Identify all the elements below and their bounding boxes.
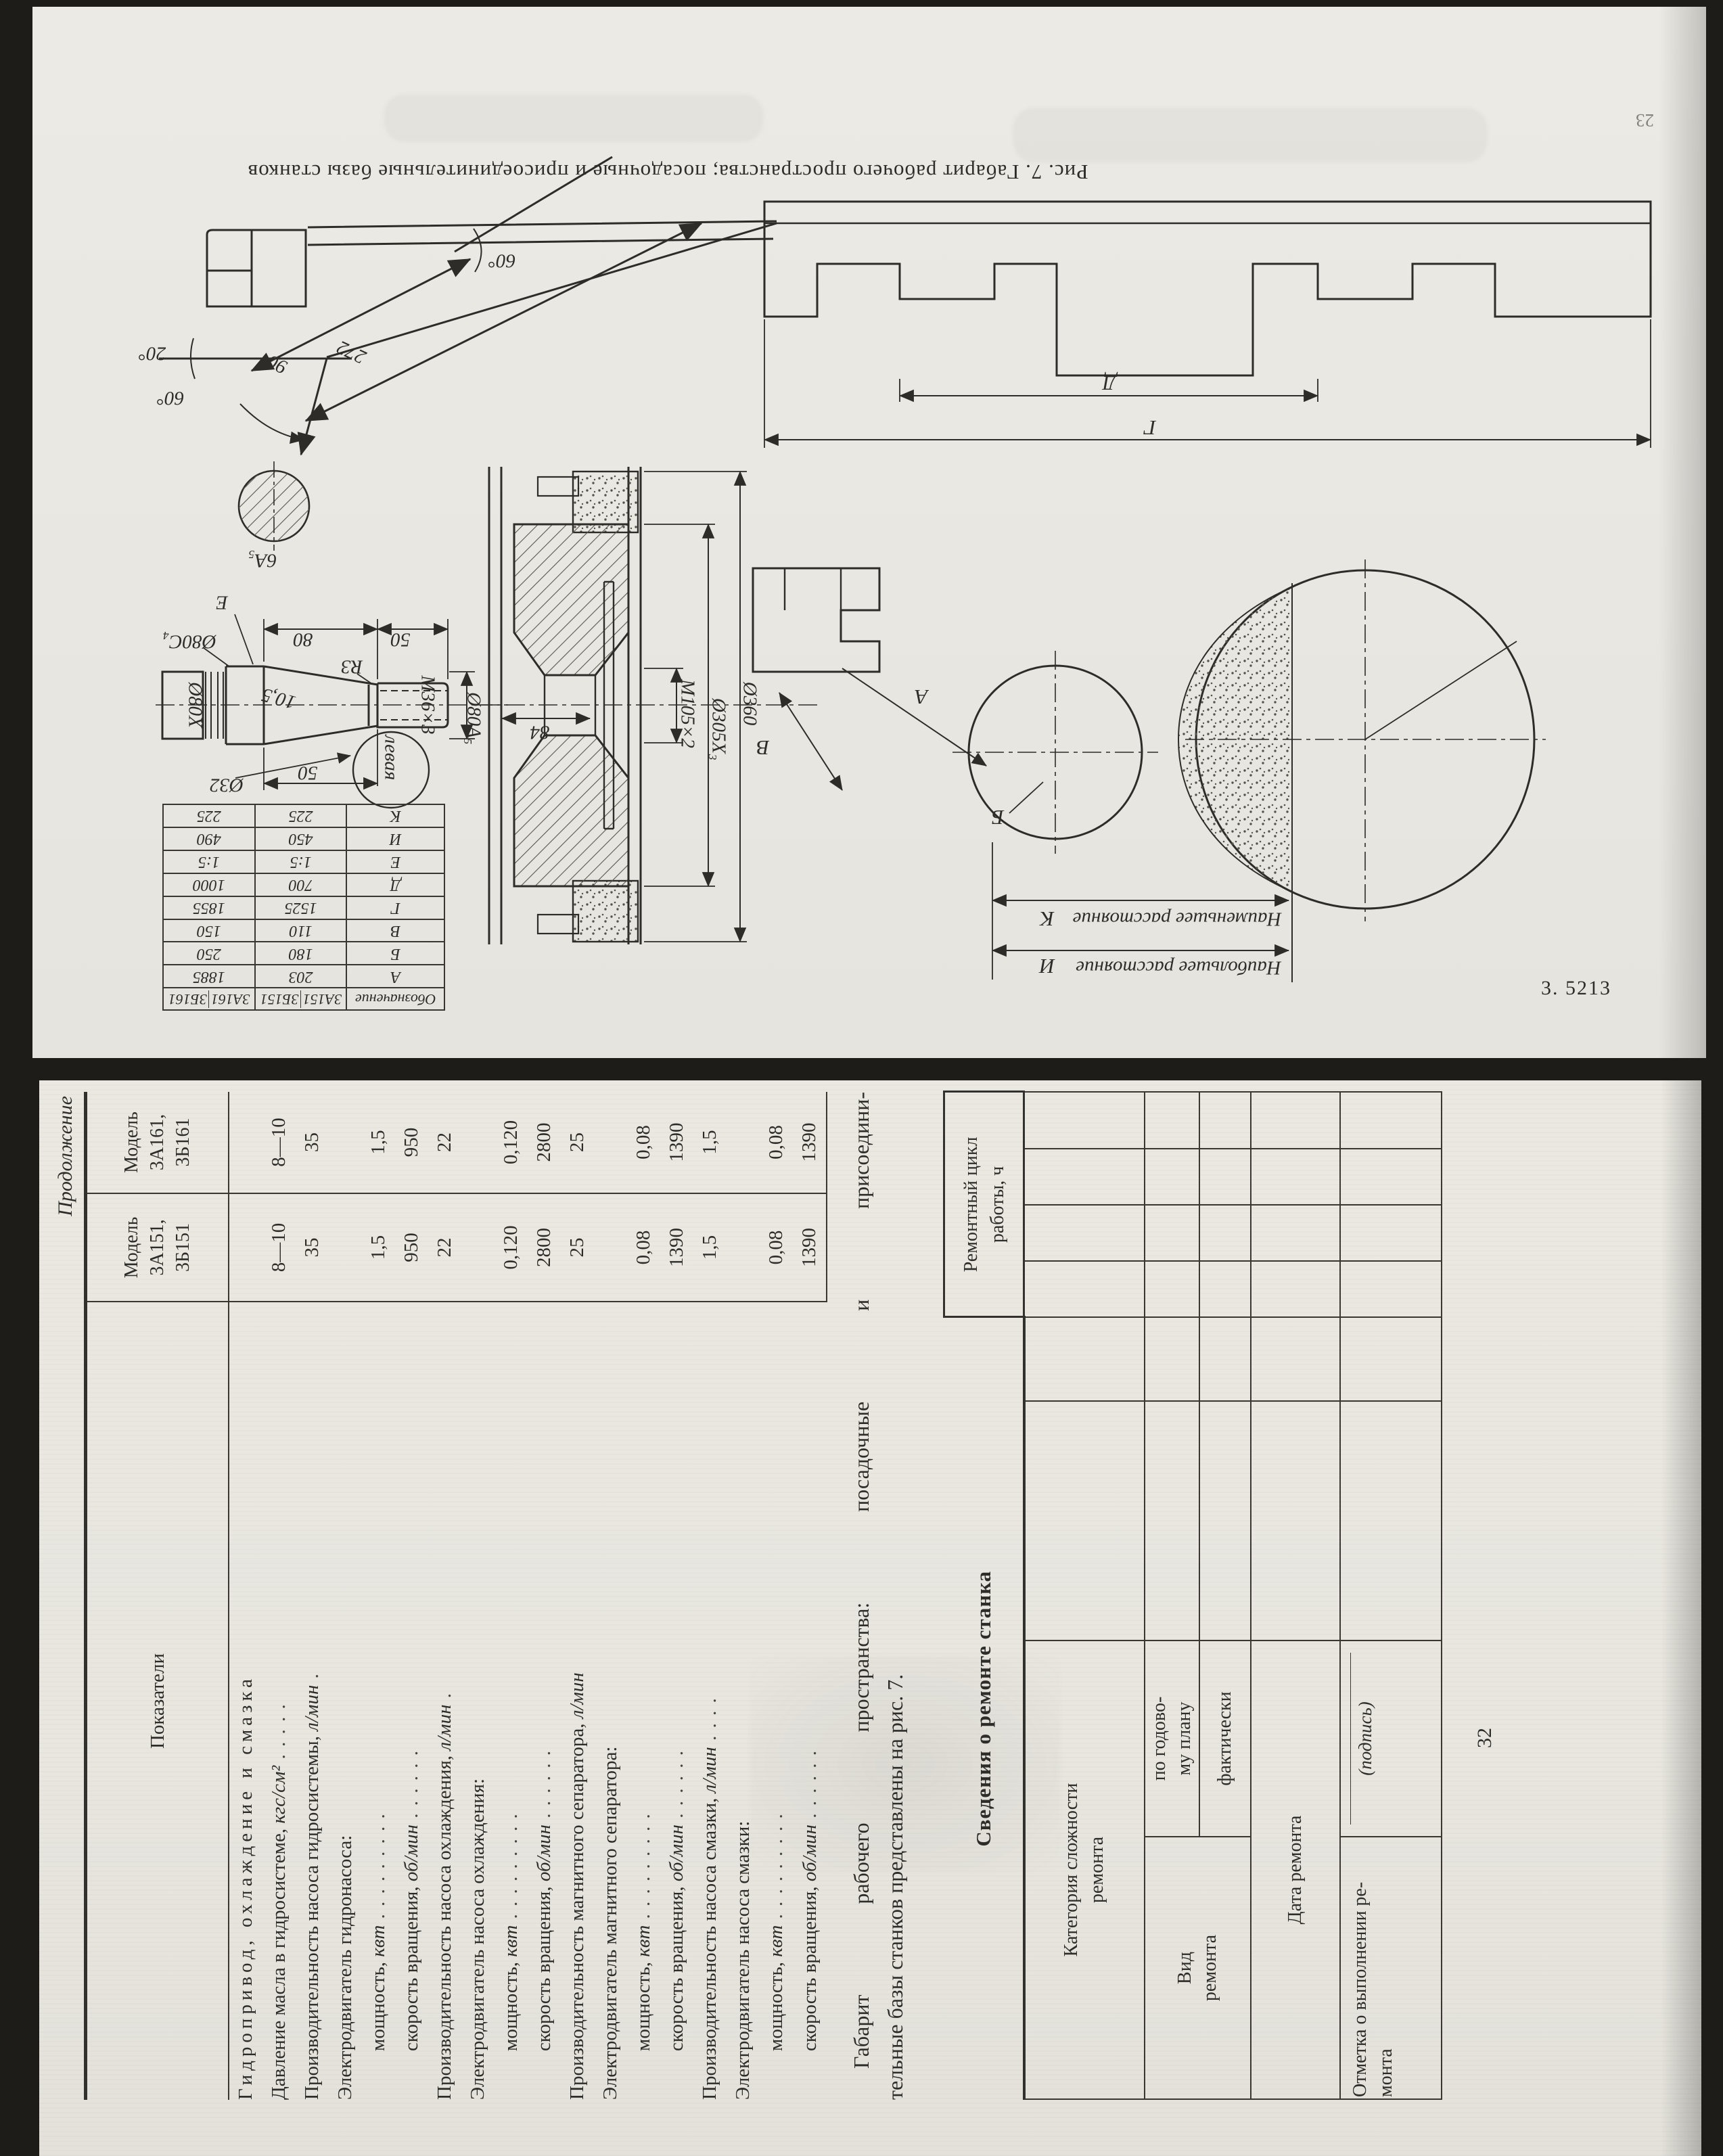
empty-cell [1199,1317,1251,1401]
dim-table-models-151: 3А1513Б151 [255,988,347,1010]
empty-cell [1145,1401,1200,1641]
spec-row: скорость вращения, об/мин . . . . . .139… [660,1092,693,2100]
dim-label: Ø80А₅ [463,692,485,745]
spec-row: Производительность насоса гидросистемы, … [296,1092,329,2100]
signature-line [1350,1653,1351,1825]
repair-cycle-header: Ремонтный цикл работы, ч [944,1092,1024,1317]
dim-label: Ø80Х [184,682,206,728]
page-number-top: 23 [1636,110,1654,131]
dim-label: Наименьшее расстояние [1073,908,1282,930]
dim-table: Обозначение 3А1513Б151 3А1613Б161 А20318… [162,804,445,1011]
spec-row: скорость вращения, об/мин . . . . . .950… [395,1092,428,2100]
repair-row-complexity: Категория сложности ремонта [1024,1092,1145,2099]
by-plan-label: по годово- му плану [1145,1641,1200,1837]
empty-cell [1340,1261,1442,1317]
dim-table-row: Б180250 [163,942,444,965]
spec-row: Производительность насоса охлаждения, л/… [428,1092,461,2100]
actual-label: фактически [1199,1641,1251,1837]
dim-label: Ø32 [210,774,244,796]
bed-profile-drawing [764,202,1651,448]
spec-row: Производительность насоса смазки, л/мин … [693,1092,727,2100]
empty-cell [1145,1317,1200,1401]
heading-cell: Сведения о ремонте станка [944,1317,1024,2099]
dim-label: 60° [488,250,516,272]
empty-cell [1145,1261,1200,1317]
guideway-profile-drawing [159,157,777,455]
signature-cell: (подпись) [1340,1641,1442,1837]
empty-cell [1145,1092,1200,1149]
dim-label: 50 [298,762,318,784]
dim-label: левая [380,735,403,781]
dim-label: Наибольшее расстояние [1076,957,1281,979]
empty-cell [1251,1205,1340,1261]
empty-cell [1251,1261,1340,1317]
dim-table-row: К225225 [163,804,444,827]
dim-table-header: Обозначение 3А1513Б151 3А1613Б161 [163,988,444,1010]
empty-cell [1199,1092,1251,1149]
spec-row: мощность, квт . . . . . . . . .0,080,08 [627,1092,660,2100]
dim-label: Б [992,805,1004,829]
print-mark: 3. 5213 [1541,977,1611,1000]
scanned-book-spread: { "page_top": { "caption": "Рис. 7. Габа… [0,0,1723,2156]
dim-table-models-161: 3А1613Б161 [163,988,255,1010]
complexity-label: Категория сложности ремонта [1024,1641,1145,2099]
signature-label: (подпись) [1355,1645,1376,1832]
empty-cell [1024,1205,1145,1261]
empty-cell [1340,1149,1442,1205]
spec-row: Электродвигатель магнитного сепаратора: [594,1092,627,2100]
dim-table-designation-header: Обозначение [346,988,444,1010]
dim-label: M36×3 [417,675,439,734]
empty-cell [1340,1205,1442,1261]
repair-row-kind-plan: Вид ремонта по годово- му плану [1145,1092,1200,2099]
empty-cell [1199,1401,1251,1641]
empty-cell [1251,1401,1340,1641]
dim-table-row: В110150 [163,919,444,942]
dim-label: 60° [157,387,185,409]
section-heading: Сведения о ремонте станка [971,1322,996,2095]
empty-cell [1251,1317,1340,1401]
repair-heading-row: Сведения о ремонте станка Ремонтный цикл… [944,1092,1024,2099]
spec-row: мощность, квт . . . . . . . . .0,080,08 [760,1092,793,2100]
dim-label: Ø80С₄ [162,630,216,653]
empty-cell [1251,1149,1340,1205]
date-label: Дата ремонта [1251,1641,1340,2099]
dim-label: 6А₅ [248,549,277,572]
spec-row: Гидропривод, охлаждение и смазка [229,1092,262,2100]
dim-label: Ø360 [739,682,761,725]
dim-label: M105×2 [676,679,699,748]
spec-header-model-161: Модель 3А161, 3Б161 [86,1092,229,1193]
spec-row: Электродвигатель гидронасоса: [329,1092,362,2100]
section-circle-drawing [239,461,309,551]
dim-label: Е [216,591,228,614]
dim-label: В [757,735,770,760]
empty-cell [1199,1149,1251,1205]
dim-label: И [1040,954,1055,978]
empty-cell [1251,1092,1340,1149]
repair-row-date: Дата ремонта [1251,1092,1340,2099]
spec-row: Давление масла в гидросистеме, кгс/см² .… [262,1092,296,2100]
wheelhead-section-drawing [474,467,822,944]
empty-cell [1024,1149,1145,1205]
empty-cell [1024,1401,1145,1641]
empty-cell [1340,1092,1442,1149]
dim-table-row: Г15251855 [163,896,444,919]
mark-label: Отметка о выполнении ре- монта [1340,1837,1442,2099]
empty-cell [1340,1401,1442,1641]
body-paragraph: Габарит рабочего пространства: посадочны… [845,1092,912,2100]
spec-row: скорость вращения, об/мин . . . . . .139… [793,1092,827,2100]
empty-cell [1145,1149,1200,1205]
page-number-bottom: 32 [1473,1092,1496,1748]
spec-row: мощность, квт . . . . . . . . .1,51,5 [362,1092,395,2100]
spec-table-header-row: Показатели Модель 3А151, 3Б151 Модель 3А… [86,1092,229,2100]
dim-label: 80 [294,628,313,651]
dim-table-row: Е1:51:5 [163,850,444,873]
spec-header-indicators: Показатели [86,1302,229,2100]
empty-cell [1024,1092,1145,1149]
empty-cell [1145,1205,1200,1261]
dim-label: 84 [530,721,550,743]
spec-row: Электродвигатель насоса охлаждения: [461,1092,495,2100]
repair-row-mark: Отметка о выполнении ре- монта (подпись) [1340,1092,1442,2099]
dim-label: Г [1144,415,1156,440]
dim-label: R3 [341,656,363,678]
empty-cell [1199,1261,1251,1317]
dim-label: Д [1103,371,1116,395]
spec-row: Электродвигатель насоса смазки: [727,1092,760,2100]
dim-label: 50 [391,628,411,651]
dim-table-row: А2031885 [163,965,444,988]
kind-label: Вид ремонта [1145,1837,1251,2099]
repair-table: Сведения о ремонте станка Ремонтный цикл… [943,1091,1442,2100]
continuation-note: Продолжение [54,1096,77,2100]
empty-cell [1024,1261,1145,1317]
empty-cell [1199,1205,1251,1261]
rotated-page-content: Продолжение Показатели Модель 3А151, 3Б1… [39,1080,1700,2155]
dim-label: Ø305Х₃ [708,698,730,760]
spec-row: мощность, квт . . . . . . . . .0,1200,12… [495,1092,528,2100]
dim-label: 20° [139,342,166,365]
spec-row: скорость вращения, об/мин . . . . . .280… [528,1092,561,2100]
spec-row: Производительность магнитного сепаратора… [561,1092,594,2100]
paragraph-line: тельные базы станков представлены на рис… [879,1092,913,2100]
figure-caption: Рис. 7. Габарит рабочего пространства; п… [177,160,1158,184]
spec-header-model-151: Модель 3А151, 3Б151 [86,1193,229,1302]
dim-label: К [1040,907,1055,931]
spec-page: Продолжение Показатели Модель 3А151, 3Б1… [39,1080,1701,2156]
spec-table: Показатели Модель 3А151, 3Б151 Модель 3А… [84,1092,827,2100]
empty-cell [1024,1317,1145,1401]
empty-cell [1340,1317,1442,1401]
dim-table-row: Д7001000 [163,873,444,896]
dim-label: А [915,685,928,709]
paragraph-line: Габарит рабочего пространства: посадочны… [845,1092,879,2100]
dim-table-row: И450490 [163,827,444,850]
